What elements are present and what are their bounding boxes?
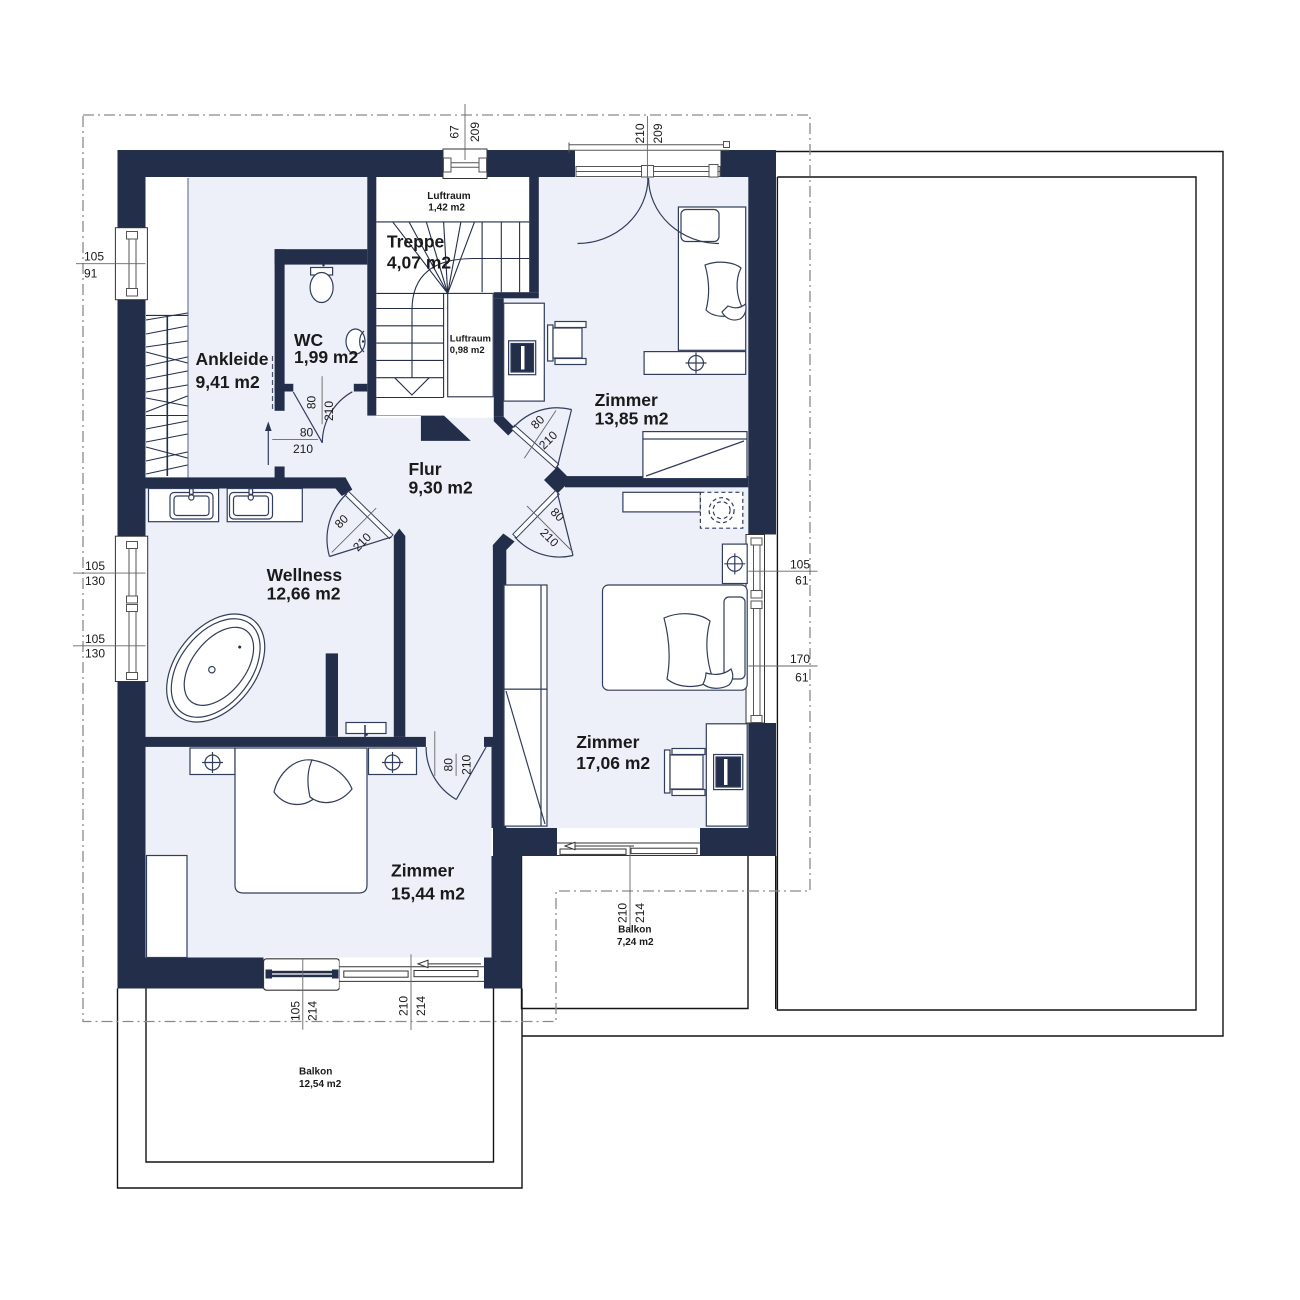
- svg-text:1,99 m2: 1,99 m2: [294, 347, 358, 367]
- svg-text:4,07 m2: 4,07 m2: [387, 253, 451, 273]
- svg-text:Ankleide: Ankleide: [196, 349, 269, 369]
- svg-text:15,44 m2: 15,44 m2: [391, 884, 465, 904]
- svg-text:Zimmer: Zimmer: [391, 861, 454, 881]
- svg-text:80: 80: [442, 758, 456, 772]
- svg-text:9,30 m2: 9,30 m2: [409, 478, 473, 498]
- svg-text:210: 210: [616, 903, 630, 923]
- svg-text:Wellness: Wellness: [267, 565, 343, 585]
- svg-text:214: 214: [414, 996, 428, 1016]
- svg-text:210: 210: [293, 442, 313, 456]
- svg-text:210: 210: [397, 996, 411, 1016]
- svg-text:12,66 m2: 12,66 m2: [267, 584, 341, 604]
- svg-text:80: 80: [300, 426, 314, 440]
- svg-text:214: 214: [633, 903, 647, 923]
- svg-text:67: 67: [448, 125, 462, 139]
- svg-text:Balkon: Balkon: [299, 1067, 332, 1078]
- svg-text:130: 130: [85, 647, 105, 661]
- svg-text:210: 210: [322, 401, 336, 421]
- svg-text:Zimmer: Zimmer: [595, 390, 658, 410]
- svg-text:Flur: Flur: [409, 459, 442, 479]
- svg-text:Luftraum: Luftraum: [427, 191, 470, 202]
- svg-text:12,54 m2: 12,54 m2: [299, 1079, 342, 1090]
- svg-text:Treppe: Treppe: [387, 232, 445, 252]
- svg-text:91: 91: [84, 267, 98, 281]
- svg-text:7,24 m2: 7,24 m2: [617, 937, 654, 948]
- svg-text:130: 130: [85, 574, 105, 588]
- svg-text:Luftraum: Luftraum: [450, 334, 491, 345]
- svg-text:61: 61: [795, 671, 809, 685]
- svg-text:105: 105: [84, 250, 104, 264]
- svg-text:105: 105: [85, 632, 105, 646]
- svg-text:209: 209: [468, 122, 482, 142]
- svg-text:Zimmer: Zimmer: [576, 732, 639, 752]
- svg-text:0,98 m2: 0,98 m2: [450, 345, 485, 356]
- svg-text:105: 105: [790, 557, 810, 571]
- svg-text:209: 209: [651, 123, 665, 143]
- svg-text:210: 210: [460, 754, 474, 774]
- svg-text:105: 105: [288, 1001, 302, 1021]
- svg-text:9,41 m2: 9,41 m2: [196, 372, 260, 392]
- svg-text:80: 80: [304, 396, 318, 410]
- svg-text:214: 214: [306, 1001, 320, 1021]
- svg-text:170: 170: [790, 652, 810, 666]
- svg-text:210: 210: [633, 123, 647, 143]
- svg-text:Balkon: Balkon: [618, 925, 651, 936]
- svg-text:105: 105: [85, 559, 105, 573]
- svg-text:13,85 m2: 13,85 m2: [595, 409, 669, 429]
- svg-text:1,42 m2: 1,42 m2: [428, 203, 465, 214]
- svg-text:17,06 m2: 17,06 m2: [576, 753, 650, 773]
- svg-text:61: 61: [795, 574, 809, 588]
